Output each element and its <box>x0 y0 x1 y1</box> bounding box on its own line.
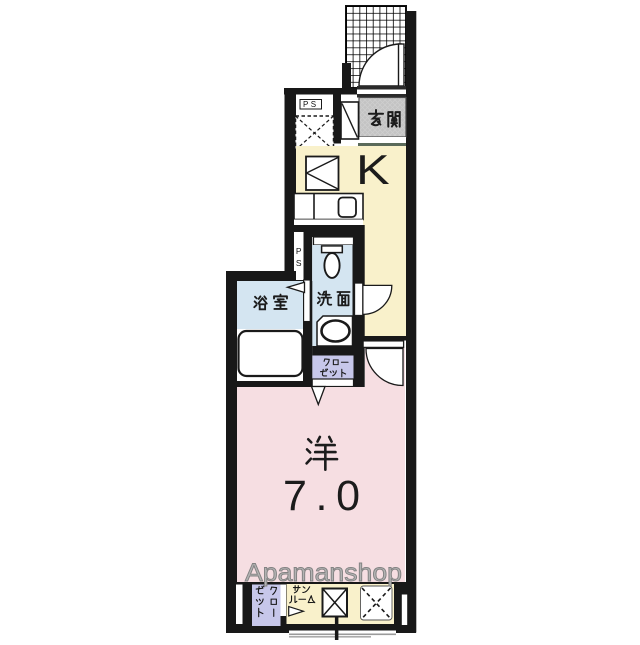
svg-text:K: K <box>356 146 390 193</box>
svg-text:PS: PS <box>303 100 319 109</box>
svg-text:Apamanshop: Apamanshop <box>245 559 402 587</box>
svg-text:7.0: 7.0 <box>283 472 360 520</box>
svg-text:P: P <box>296 246 302 256</box>
svg-text:S: S <box>296 258 302 268</box>
